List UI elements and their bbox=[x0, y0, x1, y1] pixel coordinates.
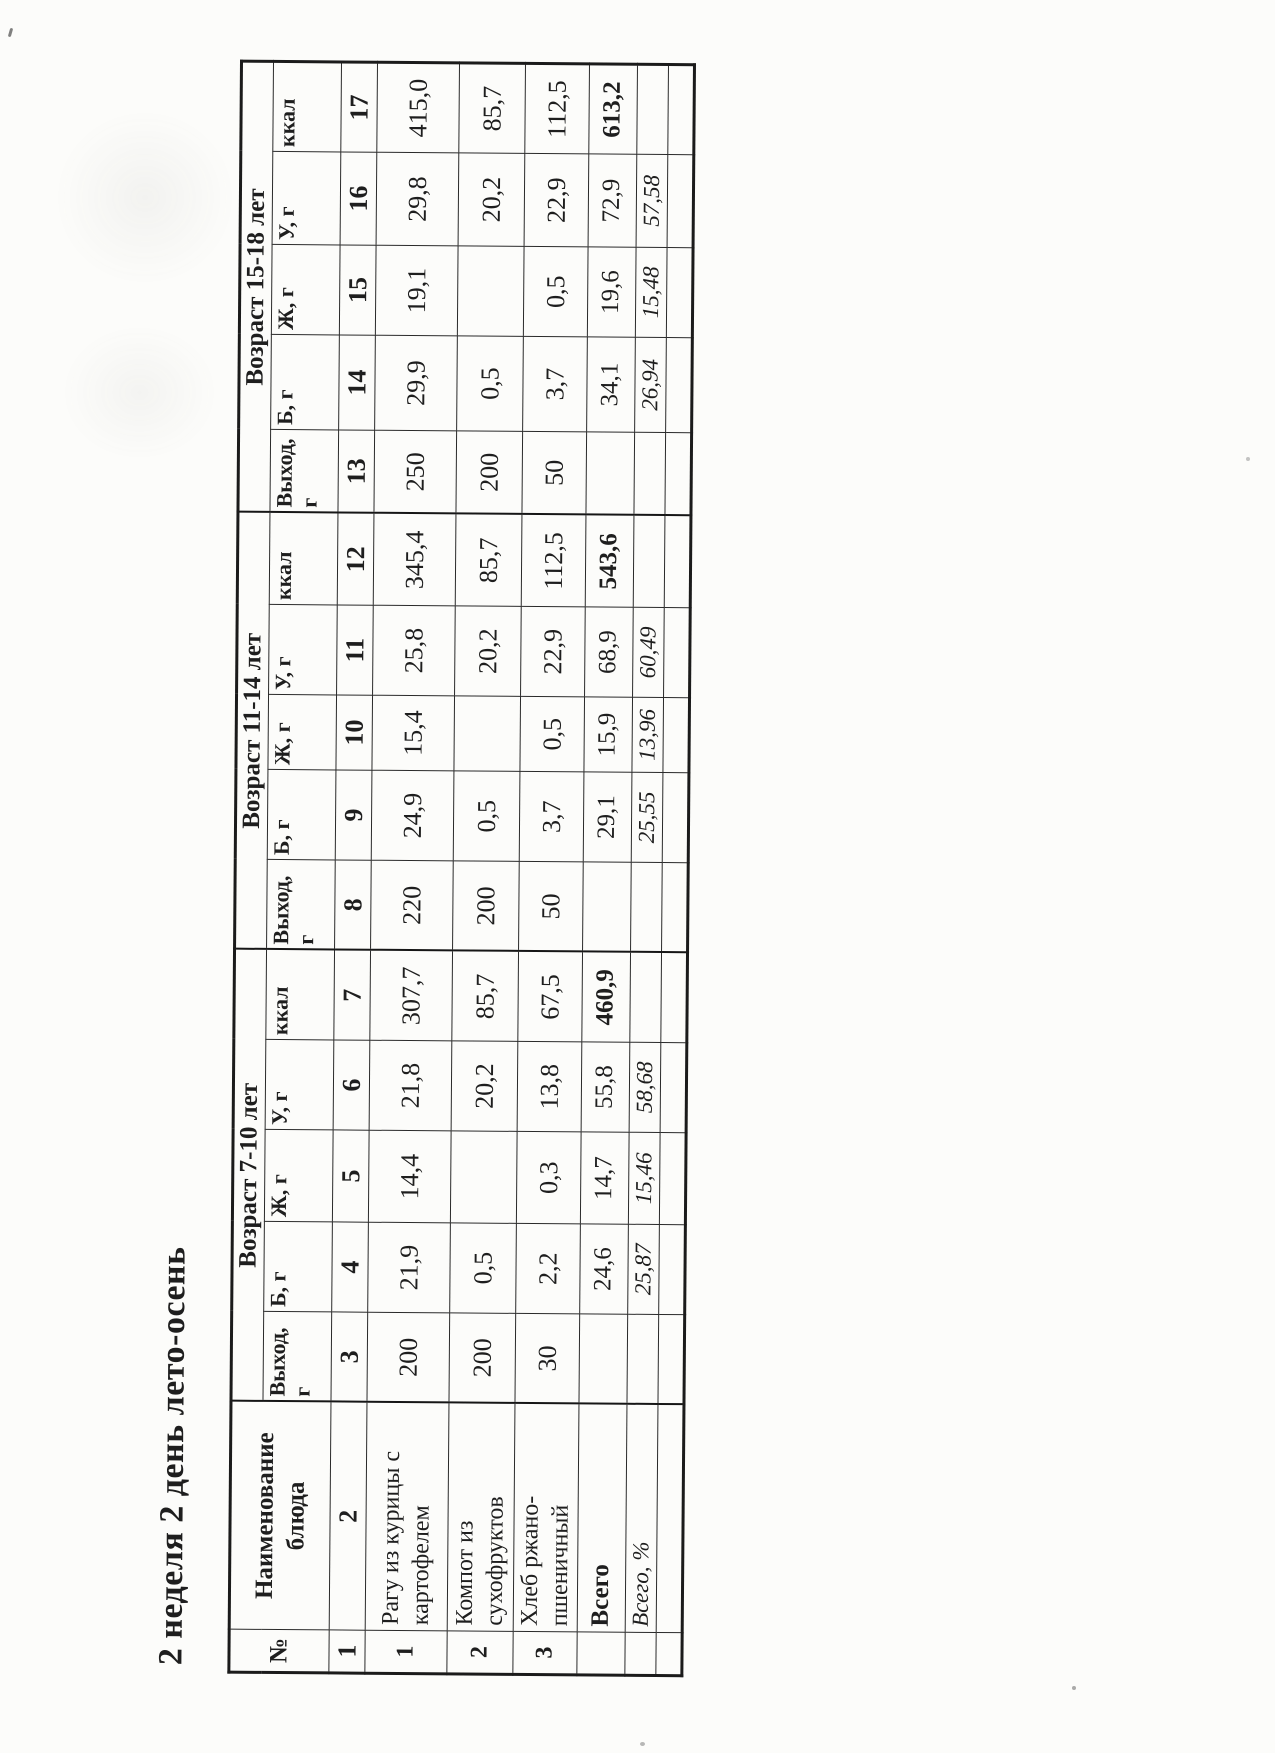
empty-row-cell-13 bbox=[665, 432, 692, 515]
percent-row-cell-11 bbox=[634, 432, 666, 515]
header-row-column-numbers-cell-6: 6 bbox=[333, 1040, 370, 1130]
col-header-u-1: У, г bbox=[265, 1039, 334, 1130]
dish-row-1-cell-2: 21,9 bbox=[368, 1222, 451, 1313]
dish-row-1-cell-9: 25,8 bbox=[373, 605, 456, 696]
empty-row-cell-4 bbox=[659, 1224, 686, 1314]
empty-row-cell-12 bbox=[664, 515, 691, 607]
col-header-b-3: Б, г bbox=[271, 334, 340, 430]
percent-label: Всего, % bbox=[625, 1404, 658, 1632]
header-row-column-numbers-cell-3: 3 bbox=[331, 1312, 368, 1402]
dish-row-1-cell-15: 415,0 bbox=[377, 62, 460, 153]
col-header-number: № bbox=[229, 1629, 329, 1673]
dish-row-1-cell-11: 250 bbox=[374, 430, 457, 514]
dish-row-2-cell-5: 85,7 bbox=[452, 951, 519, 1042]
total-row-cell-9: 68,9 bbox=[585, 607, 634, 697]
percent-row-cell-9: 60,49 bbox=[633, 607, 665, 697]
col-header-zh-3: Ж, г bbox=[271, 244, 340, 335]
row-number-empty bbox=[577, 1632, 625, 1675]
header-row-column-numbers-cell-11: 11 bbox=[337, 605, 374, 695]
dish-row-1-cell-12: 29,9 bbox=[375, 335, 458, 431]
row-number: 1 bbox=[365, 1630, 447, 1674]
total-label: Всего bbox=[577, 1404, 627, 1632]
header-row-column-numbers-cell-5: 5 bbox=[332, 1130, 369, 1222]
total-row-cell-1 bbox=[579, 1314, 628, 1404]
scan-artifact bbox=[1246, 457, 1250, 461]
total-row-cell-11 bbox=[586, 432, 635, 515]
dish-row-1-cell-6: 220 bbox=[371, 860, 454, 951]
dish-row-3-cell-15: 112,5 bbox=[525, 63, 590, 154]
col-header-b-2: Б, г bbox=[267, 769, 336, 860]
col-header-kkal-3: ккал bbox=[273, 61, 342, 152]
percent-row-cell-10 bbox=[633, 515, 665, 607]
empty-row-cell-10 bbox=[663, 698, 690, 773]
dish-row-3-cell-4: 13,8 bbox=[517, 1041, 582, 1131]
dish-row-1-cell-1: 200 bbox=[367, 1312, 450, 1403]
header-row-column-numbers-cell-7: 7 bbox=[334, 950, 371, 1040]
header-row-column-numbers-cell-9: 9 bbox=[335, 770, 372, 860]
total-row-cell-12: 34,1 bbox=[587, 337, 636, 432]
dish-row-3-cell-5: 67,5 bbox=[518, 951, 583, 1041]
empty-row-cell-17 bbox=[668, 64, 695, 154]
empty-row-cell-14 bbox=[666, 337, 693, 432]
total-row-cell-13: 19,6 bbox=[587, 247, 636, 337]
empty-row-cell-11 bbox=[664, 608, 691, 698]
dish-row-3-cell-14: 22,9 bbox=[524, 153, 589, 246]
col-header-u-3: У, г bbox=[272, 151, 341, 245]
dish-row-3-cell-2: 2,2 bbox=[516, 1223, 581, 1313]
col-header-zh-2: Ж, г bbox=[268, 694, 337, 770]
empty-row-cell-9 bbox=[662, 773, 689, 863]
rotated-content: 2 неделя 2 день лето-осень № Наименовани… bbox=[142, 62, 695, 1677]
menu-table: № Наименование блюда Возраст 7-10 лет Во… bbox=[227, 60, 696, 1678]
col-header-kkal-2: ккал bbox=[269, 512, 338, 605]
dish-row-2-cell-15: 85,7 bbox=[459, 63, 526, 154]
col-header-zh-1: Ж, г bbox=[264, 1129, 333, 1222]
empty-row-cell-1 bbox=[656, 1632, 682, 1675]
dish-row-1: 1 Рагу из курицы с картофелем 20021,914,… bbox=[365, 62, 460, 1674]
total-row-cell-3: 14,7 bbox=[580, 1132, 629, 1224]
header-row-column-numbers-cell-16: 16 bbox=[340, 152, 377, 245]
percent-row-cell-6 bbox=[631, 862, 663, 952]
scan-artifact bbox=[8, 28, 13, 37]
percent-row-cell-2: 25,87 bbox=[628, 1224, 660, 1314]
col-header-dish-name: Наименование блюда bbox=[229, 1401, 331, 1630]
dish-row-3-cell-13: 0,5 bbox=[523, 246, 588, 336]
percent-row-cell-7: 25,55 bbox=[631, 772, 663, 862]
empty-row-cell-8 bbox=[662, 863, 689, 953]
dish-name: Хлеб ржано-пшеничный bbox=[513, 1403, 579, 1631]
dish-row-2-cell-6: 200 bbox=[453, 861, 520, 952]
percent-row-cell-4: 58,68 bbox=[629, 1042, 661, 1132]
dish-row-1-cell-5: 307,7 bbox=[370, 950, 453, 1041]
header-row-column-numbers-cell-4: 4 bbox=[332, 1222, 369, 1312]
dish-row-3-cell-8: 0,5 bbox=[520, 696, 585, 772]
group-header-age-7-10: Возраст 7-10 лет bbox=[231, 949, 267, 1401]
total-row-cell-2: 24,6 bbox=[580, 1224, 629, 1314]
total-row-cell-14: 72,9 bbox=[588, 154, 637, 247]
group-header-age-11-14: Возраст 11-14 лет bbox=[235, 512, 270, 949]
dish-row-1-cell-7: 24,9 bbox=[371, 770, 454, 861]
total-row-cell-10: 543,6 bbox=[585, 515, 634, 607]
percent-row-cell-14: 57,58 bbox=[636, 154, 668, 247]
empty-row-cell-6 bbox=[660, 1043, 687, 1133]
header-row-column-numbers-cell-15: 15 bbox=[339, 245, 376, 335]
dish-row-3-cell-1: 30 bbox=[515, 1313, 580, 1403]
col-header-u-2: У, г bbox=[269, 604, 338, 695]
dish-row-2-cell-13 bbox=[457, 246, 524, 337]
scan-artifact bbox=[1072, 1686, 1076, 1690]
empty-row-cell-16 bbox=[667, 154, 694, 247]
header-row-column-numbers-cell-2: 2 bbox=[329, 1402, 367, 1630]
dish-row-3-cell-7: 3,7 bbox=[519, 771, 584, 861]
col-header-vyhod-1: Выход, г bbox=[263, 1311, 332, 1402]
dish-row-2: 2 Компот из сухофруктов 2000,520,285,720… bbox=[447, 63, 526, 1675]
dish-row-1-cell-13: 19,1 bbox=[375, 245, 458, 336]
percent-row-cell-13: 15,48 bbox=[635, 247, 667, 337]
header-row-column-numbers-cell-13: 13 bbox=[338, 430, 375, 513]
header-row-column-numbers-cell-8: 8 bbox=[335, 860, 372, 950]
dish-row-1-cell-3: 14,4 bbox=[368, 1130, 451, 1223]
scanned-page: 2 неделя 2 день лето-осень № Наименовани… bbox=[0, 0, 1275, 1753]
empty-row-cell-2 bbox=[656, 1404, 684, 1632]
header-row-column-numbers-cell-17: 17 bbox=[341, 62, 378, 152]
total-row-cell-8: 15,9 bbox=[584, 697, 633, 772]
total-row-cell-5: 460,9 bbox=[582, 952, 631, 1042]
empty-row-cell-7 bbox=[661, 953, 688, 1043]
dish-name: Компот из сухофруктов bbox=[447, 1403, 515, 1632]
percent-row-cell-15 bbox=[637, 64, 669, 154]
total-row-cell-4: 55,8 bbox=[581, 1042, 630, 1132]
dish-row-2-cell-12: 0,5 bbox=[457, 336, 524, 432]
dish-row-2-cell-14: 20,2 bbox=[458, 153, 525, 247]
dish-name: Рагу из курицы с картофелем bbox=[365, 1402, 449, 1631]
dish-row-1-cell-10: 345,4 bbox=[373, 513, 456, 606]
total-row-cell-6 bbox=[583, 862, 632, 952]
dish-row-2-cell-10: 85,7 bbox=[455, 514, 522, 607]
dish-row-2-cell-11: 200 bbox=[456, 431, 523, 515]
header-row-column-numbers-cell-1: 1 bbox=[329, 1630, 365, 1673]
dish-row-1-cell-4: 21,8 bbox=[369, 1040, 452, 1131]
dish-row-3-cell-6: 50 bbox=[519, 861, 584, 951]
dish-row-2-cell-4: 20,2 bbox=[451, 1041, 518, 1132]
dish-row-3-cell-3: 0,3 bbox=[516, 1131, 581, 1223]
col-header-b-1: Б, г bbox=[264, 1221, 333, 1312]
dish-row-2-cell-2: 0,5 bbox=[450, 1223, 517, 1314]
dish-row-2-cell-1: 200 bbox=[449, 1313, 516, 1404]
empty-row-cell-5 bbox=[659, 1133, 686, 1225]
dish-row-1-cell-14: 29,8 bbox=[376, 152, 459, 246]
row-number-empty bbox=[625, 1632, 656, 1675]
percent-row-cell-8: 13,96 bbox=[632, 697, 664, 772]
document-title: 2 неделя 2 день лето-осень bbox=[152, 1246, 193, 1665]
dish-row-3-cell-9: 22,9 bbox=[521, 606, 586, 696]
row-number: 2 bbox=[447, 1631, 513, 1675]
percent-row-cell-5 bbox=[630, 952, 662, 1042]
header-row-column-numbers-cell-14: 14 bbox=[339, 335, 376, 430]
percent-row-cell-1 bbox=[627, 1314, 659, 1404]
empty-row-cell-15 bbox=[666, 247, 693, 337]
group-header-age-15-18: Возраст 15-18 лет bbox=[238, 61, 274, 512]
percent-row-cell-12: 26,94 bbox=[635, 337, 667, 432]
header-row-column-numbers-cell-10: 10 bbox=[336, 695, 373, 770]
header-row-column-numbers-cell-12: 12 bbox=[337, 513, 374, 605]
dish-row-1-cell-8: 15,4 bbox=[372, 695, 455, 771]
col-header-vyhod-2: Выход, г bbox=[267, 859, 336, 950]
percent-row-cell-3: 15,46 bbox=[628, 1132, 660, 1224]
row-number: 3 bbox=[513, 1631, 577, 1675]
total-row-cell-7: 29,1 bbox=[583, 772, 632, 862]
scan-artifact bbox=[640, 1742, 645, 1746]
total-row-cell-15: 613,2 bbox=[589, 64, 638, 154]
col-header-vyhod-3: Выход, г bbox=[270, 429, 339, 513]
dish-row-3-cell-10: 112,5 bbox=[521, 514, 586, 607]
dish-row-3-cell-11: 50 bbox=[522, 431, 587, 515]
dish-row-2-cell-3 bbox=[450, 1131, 517, 1224]
dish-row-2-cell-9: 20,2 bbox=[455, 606, 522, 697]
empty-row-cell-3 bbox=[658, 1314, 685, 1404]
col-header-kkal-1: ккал bbox=[266, 949, 335, 1040]
dish-row-2-cell-7: 0,5 bbox=[453, 771, 520, 862]
dish-row-3-cell-12: 3,7 bbox=[523, 336, 588, 431]
dish-row-2-cell-8 bbox=[454, 696, 521, 772]
